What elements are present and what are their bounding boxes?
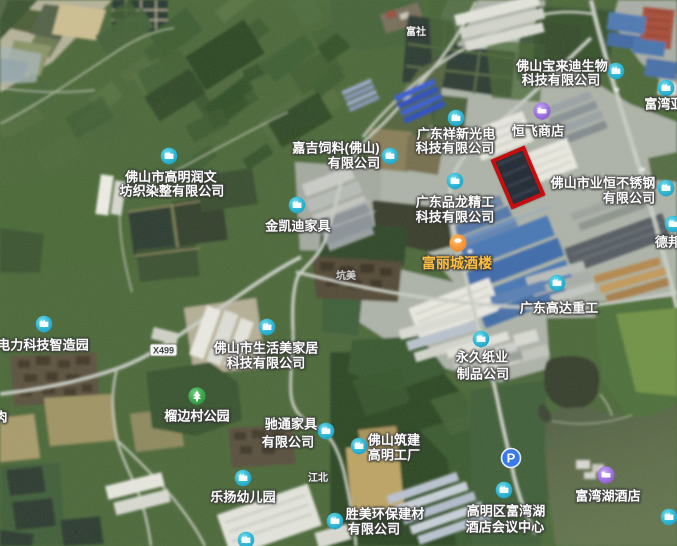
svg-text:P: P	[507, 451, 516, 466]
svg-text:X499: X499	[153, 346, 174, 356]
